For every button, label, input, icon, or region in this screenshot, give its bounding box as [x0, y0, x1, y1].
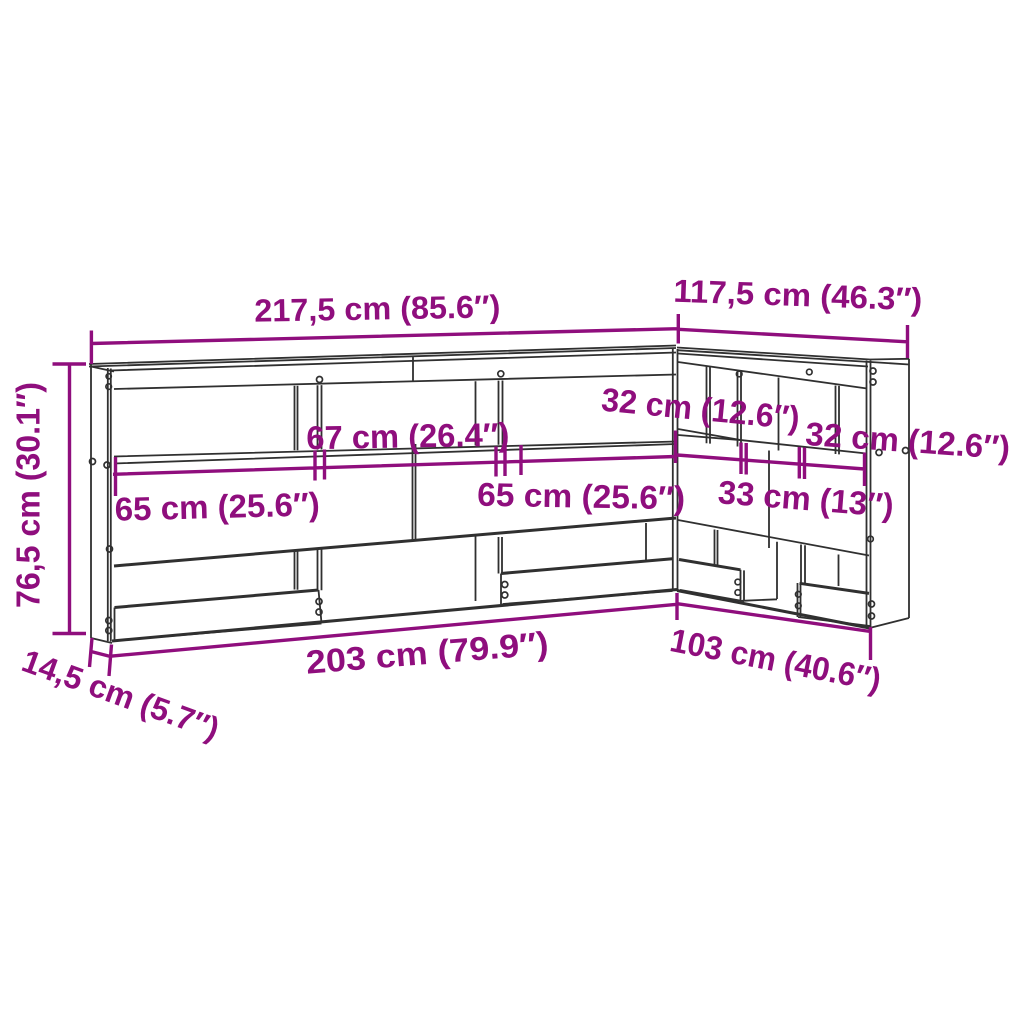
svg-text:65 cm (25.6″): 65 cm (25.6″) [114, 485, 320, 527]
svg-text:65 cm (25.6″): 65 cm (25.6″) [477, 476, 686, 517]
svg-text:76,5 cm (30.1″): 76,5 cm (30.1″) [10, 382, 47, 608]
svg-text:217,5 cm (85.6″): 217,5 cm (85.6″) [254, 288, 501, 328]
svg-text:67 cm (26.4″): 67 cm (26.4″) [306, 416, 510, 457]
